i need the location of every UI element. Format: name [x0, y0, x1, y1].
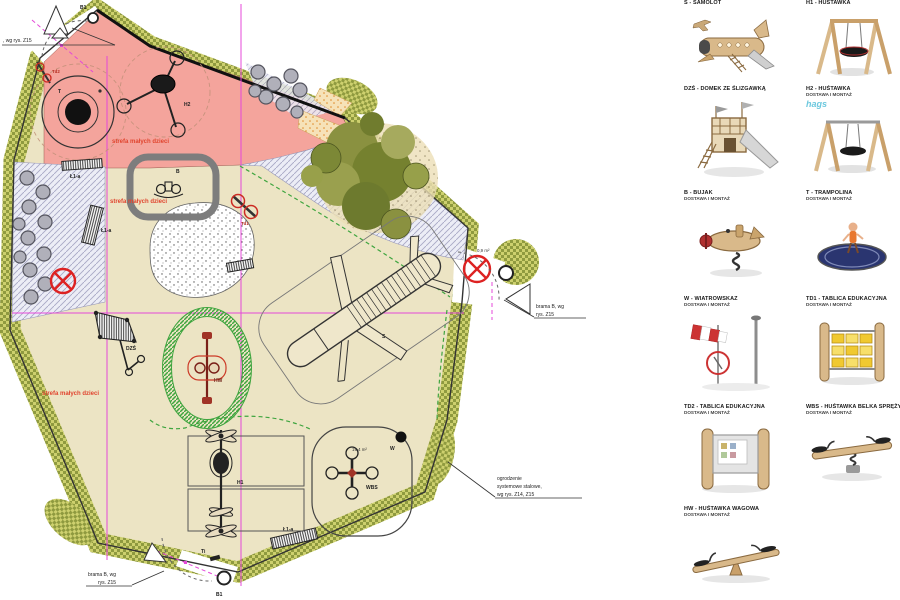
seesaw-label: HW [214, 378, 223, 384]
swing-h1-label: H1 [237, 480, 244, 486]
page: T H2 Td2 B [0, 0, 900, 600]
edu-panel-board-photo-icon [684, 419, 788, 497]
point-b1-label: B1 [80, 5, 87, 11]
rocker-label: B [176, 169, 180, 175]
windsock-label: W [390, 446, 395, 452]
board-td1-label: Td1 [241, 221, 249, 226]
edu-panel-blocks-photo-icon [806, 311, 898, 389]
bench-label: Ł1-a [283, 527, 294, 533]
svg-text:rys. Z15: rys. Z15 [536, 312, 554, 318]
legend-item-hw: HW - HUŚTAWKA WAGOWA DOSTAWA I MONTAŻ [684, 506, 802, 587]
annotation-gate-bottom: brama B, wg rys. Z15 [86, 571, 164, 586]
house-slide-label: DZŚ [126, 345, 137, 352]
tower-slide-photo-icon [684, 96, 788, 182]
board-td2-label: Td2 [52, 69, 60, 74]
annotation-gate-area: 0,9 m² [477, 248, 490, 253]
svg-text:systemowe stalowe,: systemowe stalowe, [497, 484, 542, 490]
svg-text:ogrodzenie: ogrodzenie [497, 476, 522, 482]
legend-item-h2: H2 - HUŚTAWKA DOSTAWA I MONTAŻ hags [806, 86, 900, 177]
wbs-area-label: 19,4 m² [352, 447, 367, 452]
zone-label: strefa małych dzieci [42, 391, 99, 397]
svg-text:wg rys. Z14, Z15: wg rys. Z14, Z15 [497, 492, 534, 498]
nest-swing-photo-icon [806, 113, 898, 177]
legend-label: DZŚ - DOMEK ZE ŚLIZGAWKĄ [684, 86, 802, 92]
svg-text:brama B, wg: brama B, wg [88, 572, 116, 578]
legend-sublabel: DOSTAWA I MONTAŻ [806, 196, 900, 201]
swing-frame-photo-icon [806, 10, 898, 82]
svg-text:rys. Z15: rys. Z15 [98, 580, 116, 586]
svg-text:brama B, wg: brama B, wg [536, 304, 564, 310]
spring-beam-label: WBS [366, 485, 378, 491]
zone-label: strefa małych dzieci [112, 139, 169, 145]
legend-item-trampolina: T - TRAMPOLINA DOSTAWA I MONTAŻ [806, 190, 900, 279]
trampoline-label: T [58, 89, 61, 95]
spring-rocker-photo-icon [684, 205, 788, 281]
legend-sublabel: DOSTAWA I MONTAŻ [806, 92, 900, 97]
legend-item-wbs: WBS - HUŚTAWKA BELKA SPRĘŻYNOWA DOSTAWA … [806, 404, 900, 485]
legend-item-td2: TD2 - TABLICA EDUKACYJNA DOSTAWA I MONTA… [684, 404, 802, 497]
point-b1-top [88, 13, 98, 23]
legend-item-h1: H1 - HUŚTAWKA [806, 0, 900, 82]
legend-label: H1 - HUŚTAWKA [806, 0, 900, 6]
legend-item-wiatrowskaz: W - WIATROWSKAZ DOSTAWA I MONTAŻ [684, 296, 802, 393]
windsock-photo-icon [684, 311, 788, 393]
spring-beam-photo-icon [806, 419, 898, 485]
annotation-fence: ogrodzenie systemowe stalowe, wg rys. Z1… [448, 462, 582, 498]
site-plan-svg: T H2 Td2 B [0, 0, 680, 600]
airplane-photo-icon [684, 10, 788, 80]
legend-label: S - SAMOLOT [684, 0, 802, 6]
point-b1-label: B1 [216, 592, 223, 598]
legend-item-td1: TD1 - TABLICA EDUKACYJNA DOSTAWA I MONTA… [806, 296, 900, 389]
legend-sublabel: DOSTAWA I MONTAŻ [806, 302, 900, 307]
bench-label: Ł1-a [101, 228, 112, 234]
bench-label: Ł1-a [70, 174, 81, 180]
svg-text:, wg rys. Z15: , wg rys. Z15 [3, 38, 32, 44]
manufacturer-watermark: hags [806, 99, 900, 109]
legend-sublabel: DOSTAWA I MONTAŻ [806, 410, 900, 415]
legend-item-dzs: DZŚ - DOMEK ZE ŚLIZGAWKĄ [684, 86, 802, 182]
legend-item-samolot: S - SAMOLOT [684, 0, 802, 80]
info-board-label: Ti [201, 549, 206, 555]
point-b1-right [499, 266, 513, 280]
legend-sublabel: DOSTAWA I MONTAŻ [684, 512, 802, 517]
legend-sublabel: DOSTAWA I MONTAŻ [684, 410, 802, 415]
equipment-legend: S - SAMOLOT H1 - HUŚTAWKA [680, 0, 900, 600]
zone-label: strefa małych dzieci [110, 199, 167, 205]
trampoline-photo-icon [806, 205, 898, 279]
legend-item-bujak: B - BUJAK DOSTAWA I MONTAŻ [684, 190, 802, 281]
swing-h2-label: H2 [184, 102, 191, 108]
seesaw-photo-icon [684, 521, 788, 587]
legend-sublabel: DOSTAWA I MONTAŻ [684, 302, 802, 307]
point-b1-bottom [218, 572, 231, 585]
legend-sublabel: DOSTAWA I MONTAŻ [684, 196, 802, 201]
